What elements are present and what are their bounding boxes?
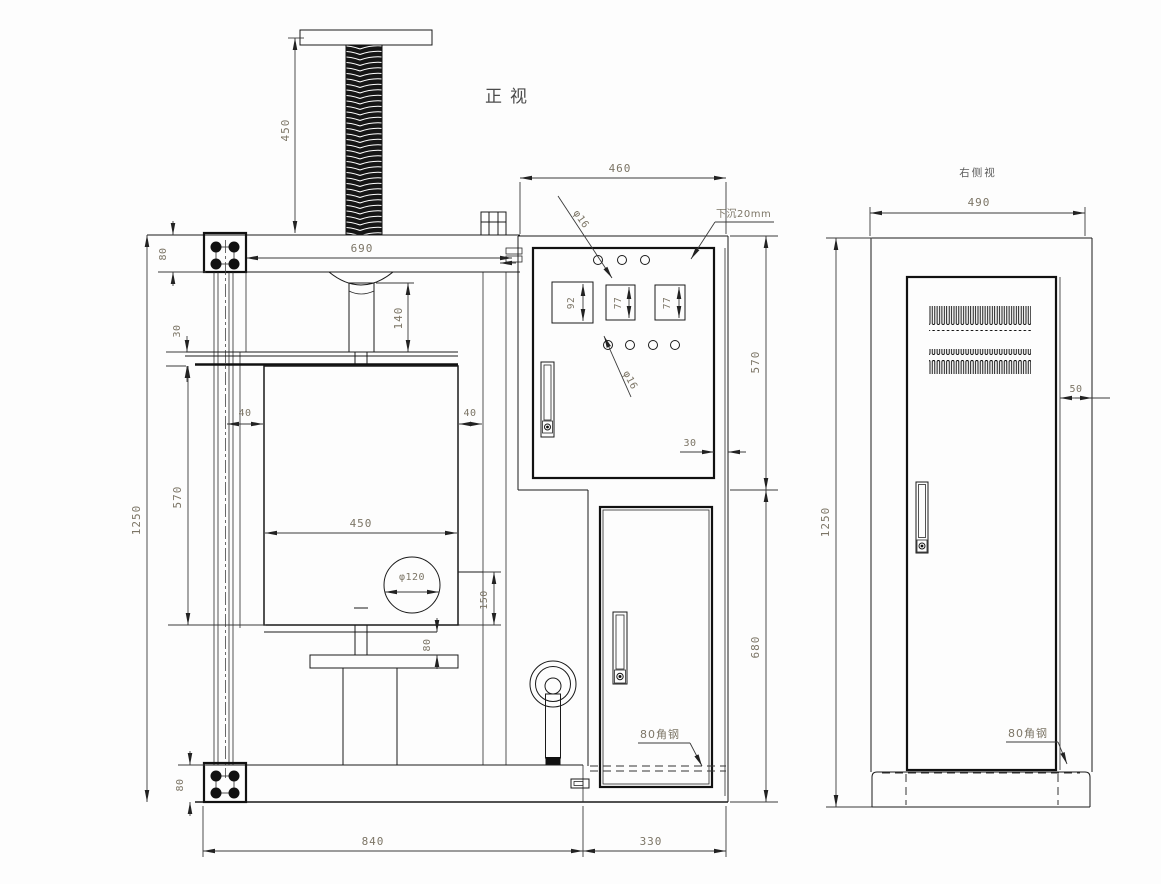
vent-slots-row1 bbox=[929, 306, 1031, 331]
dim-40-left: 40 bbox=[227, 408, 263, 424]
meter-2: 77 bbox=[606, 285, 635, 320]
side-door-handle bbox=[916, 482, 928, 553]
dim-chamber-width: 450 bbox=[350, 517, 373, 530]
side-view-title: 右侧视 bbox=[959, 166, 997, 179]
dim-80-top: 80 bbox=[158, 221, 206, 286]
angle-steel-label: 80角钢 bbox=[640, 728, 680, 741]
dim-450: 450 bbox=[279, 38, 304, 233]
note-recessed: 下沉20mm bbox=[691, 207, 774, 259]
front-view: 正视 450 690 bbox=[130, 30, 728, 857]
bolt-block-bottom bbox=[204, 763, 246, 802]
dim-40-right: 40 bbox=[459, 408, 482, 424]
side-cabinet bbox=[871, 238, 1092, 772]
dim-hole-bottom: φ16 bbox=[620, 369, 639, 391]
drawing-canvas: 正视 450 690 bbox=[0, 0, 1161, 884]
note-recessed-text: 下沉20mm bbox=[716, 207, 771, 220]
meter-1: 92 bbox=[552, 282, 593, 323]
dim-step-height: 150 bbox=[479, 590, 490, 610]
top-beam: 690 bbox=[147, 212, 522, 272]
dim-shelf-thickness: 30 bbox=[172, 324, 183, 337]
clamp-bracket bbox=[500, 248, 522, 263]
dim-lower-height: 680 bbox=[749, 636, 762, 659]
dim-chamber-height: 570 bbox=[171, 486, 184, 509]
dim-base-height: 80 bbox=[175, 778, 186, 791]
side-view: 右侧视 490 50 bbox=[819, 166, 1110, 807]
bolt bbox=[229, 771, 240, 782]
dim-base-width: 840 bbox=[362, 835, 385, 848]
dim-ram-height: 140 bbox=[392, 307, 405, 330]
bolt bbox=[211, 788, 222, 799]
dim-meter2-height: 77 bbox=[613, 297, 624, 309]
label-angle-steel-front: 80角钢 bbox=[638, 728, 702, 766]
dim-50: 50 bbox=[1060, 384, 1110, 398]
dim-door-gap: 50 bbox=[1069, 384, 1082, 395]
cabinet-door bbox=[600, 507, 712, 787]
dim-450-chamber: 450 bbox=[265, 517, 457, 533]
meter-3: 77 bbox=[655, 285, 685, 320]
dim-30-shelf: 30 bbox=[172, 324, 187, 382]
dim-panel-height: 570 bbox=[749, 351, 762, 374]
right-column bbox=[483, 272, 506, 765]
indicator-holes-bottom bbox=[604, 341, 680, 350]
left-column bbox=[214, 240, 246, 778]
leader-phi16-bottom: φ16 bbox=[604, 336, 639, 397]
dim-meter3-height: 77 bbox=[662, 297, 673, 309]
dim-screw-height: 450 bbox=[279, 119, 292, 142]
dim-460: 460 bbox=[520, 162, 726, 234]
dim-edge-gap: 30 bbox=[683, 438, 696, 449]
screw-handle-bar bbox=[300, 30, 432, 45]
control-panel: φ16 92 77 77 φ16 bbox=[518, 162, 778, 802]
screw-assembly bbox=[300, 30, 432, 235]
cabinet-door-handle bbox=[613, 612, 627, 684]
dim-680: 680 bbox=[730, 490, 778, 802]
shelf bbox=[166, 352, 458, 366]
dim-570-left: 570 bbox=[168, 366, 266, 625]
dim-840-330: 840 330 bbox=[203, 806, 726, 857]
engineering-drawing: 正视 450 690 bbox=[0, 0, 1161, 884]
dim-side-height: 1250 bbox=[819, 507, 832, 538]
dim-150: 150 bbox=[460, 572, 501, 625]
hole-circle bbox=[384, 557, 440, 613]
dim-gap-right: 40 bbox=[463, 408, 476, 419]
nut-block bbox=[481, 212, 506, 235]
dim-beam-width: 690 bbox=[351, 242, 374, 255]
bolt bbox=[229, 242, 240, 253]
panel-handle bbox=[541, 362, 554, 437]
side-base bbox=[872, 772, 1090, 807]
dim-side-width: 490 bbox=[968, 196, 991, 209]
bolt bbox=[229, 259, 240, 270]
dim-panel-width: 460 bbox=[609, 162, 632, 175]
label-angle-steel-side: 80角钢 bbox=[1006, 727, 1067, 764]
dim-pedestal-step: 80 bbox=[422, 638, 433, 651]
dim-cabinet-width: 330 bbox=[640, 835, 663, 848]
dim-meter1-height: 92 bbox=[566, 297, 577, 309]
chamber: φ120 bbox=[264, 366, 483, 625]
dim-490: 490 bbox=[870, 196, 1085, 236]
dim-hole-diameter: φ120 bbox=[399, 572, 425, 583]
dim-1250-front: 1250 bbox=[130, 235, 147, 802]
bottom-base bbox=[195, 763, 728, 802]
bolt bbox=[211, 242, 222, 253]
vent-slots-row2 bbox=[929, 349, 1031, 374]
dim-gap-left: 40 bbox=[238, 408, 251, 419]
dim-beam-height: 80 bbox=[158, 247, 169, 260]
bolt-block-top bbox=[204, 233, 246, 272]
leader-phi16-top: φ16 bbox=[558, 196, 612, 278]
lower-cabinet: 80角钢 bbox=[588, 490, 726, 787]
bolt bbox=[211, 771, 222, 782]
threaded-screw bbox=[346, 45, 382, 235]
dim-140: 140 bbox=[376, 283, 414, 352]
bolt bbox=[211, 259, 222, 270]
handwheel bbox=[530, 661, 576, 765]
dim-overall-height: 1250 bbox=[130, 505, 143, 536]
dim-1250-side: 1250 bbox=[819, 238, 872, 807]
angle-steel-label: 80角钢 bbox=[1008, 727, 1048, 740]
dim-80-bottom: 80 bbox=[175, 751, 206, 816]
front-view-title: 正视 bbox=[485, 87, 535, 107]
bolt bbox=[229, 788, 240, 799]
